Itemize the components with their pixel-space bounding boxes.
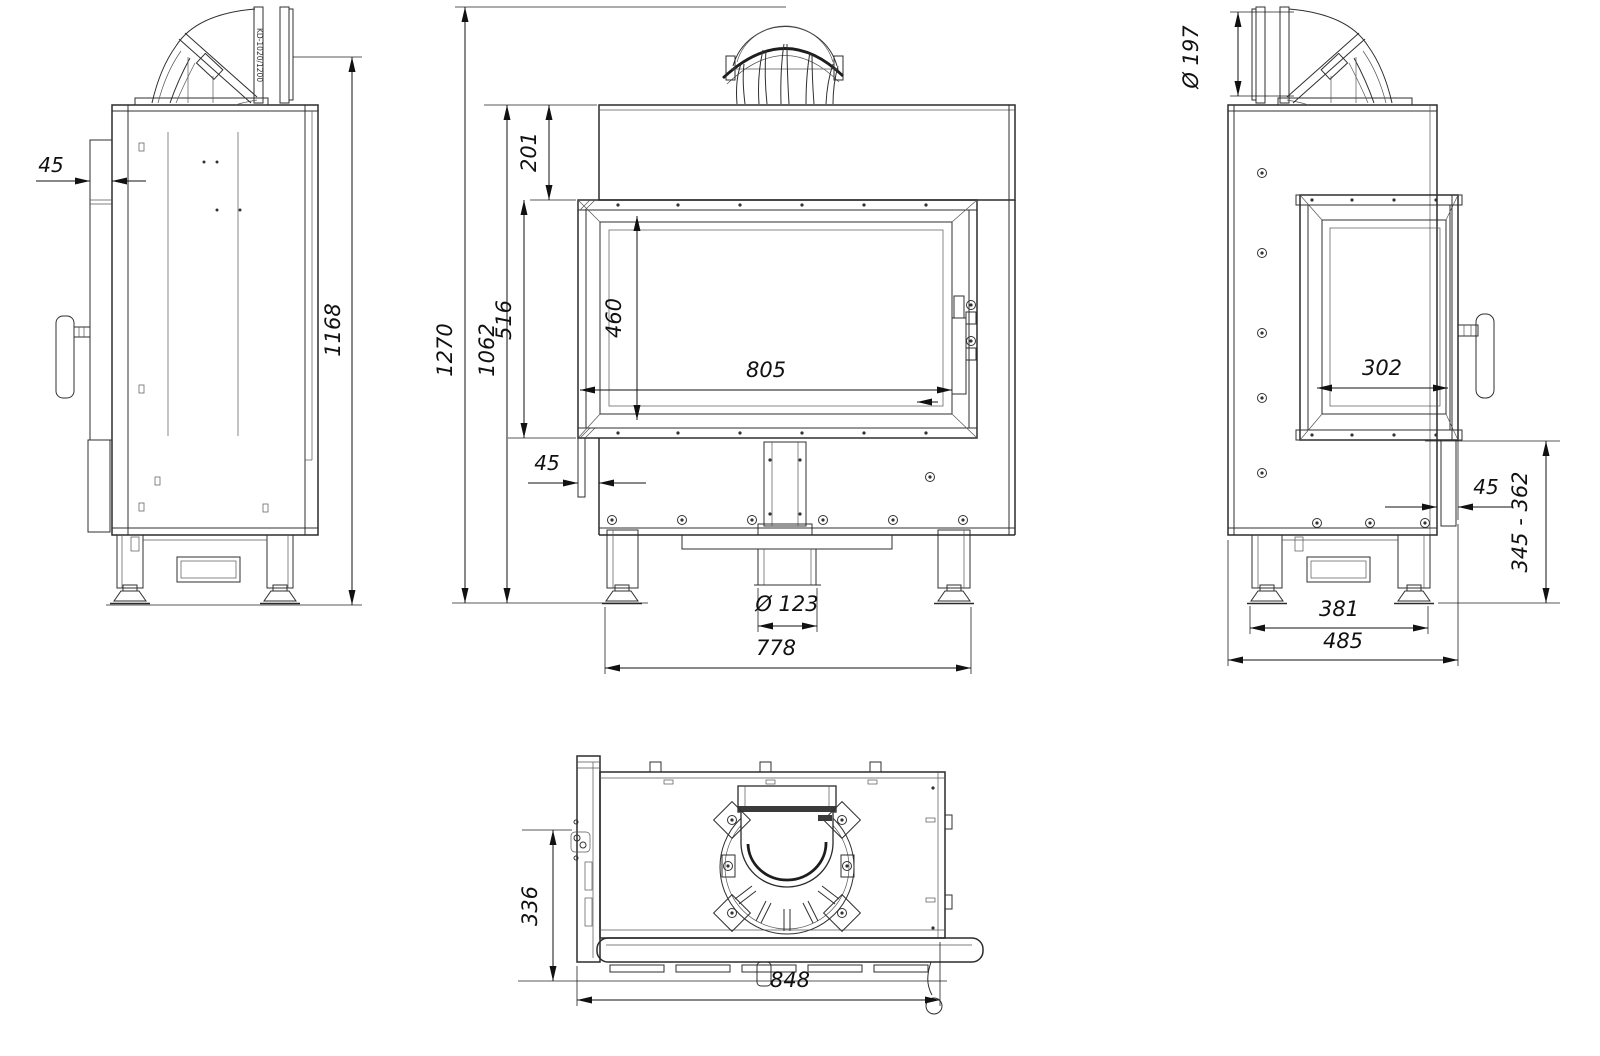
left-view-base <box>110 535 300 604</box>
dim-front-air-inlet: Ø 123 <box>754 588 818 632</box>
dim-front-glass-width: 805 <box>580 358 952 390</box>
dim-right-glass-width-label: 302 <box>1362 356 1402 380</box>
dim-front-top-offset-label: 201 <box>517 132 541 172</box>
dim-front-side-offset-label: 45 <box>534 451 559 475</box>
dim-front-total-height-label: 1270 <box>433 323 457 376</box>
right-view-base <box>1247 535 1434 604</box>
dim-top-width: 848 <box>577 942 940 1006</box>
fireplace-drawing: KD-1020/1200 45 1168 <box>0 0 1600 1056</box>
top-view: 336 848 <box>518 756 983 1014</box>
dim-front-glass-height: 460 <box>602 216 637 420</box>
top-view-left-wall <box>571 756 600 962</box>
front-view-door <box>578 200 977 438</box>
dim-right-front-offset: 45 <box>1385 440 1512 520</box>
right-view-flue-elbow <box>1252 7 1412 105</box>
dim-front-door-height-label: 516 <box>492 300 516 340</box>
front-view-lower-body <box>578 200 1015 604</box>
dim-front-glass-width-label: 805 <box>746 358 786 382</box>
door-latch <box>952 296 976 394</box>
top-view-flue-adapter <box>714 786 861 934</box>
left-view-front-frame-edge <box>88 140 112 532</box>
dim-right-front-offset-label: 45 <box>1473 475 1498 499</box>
dim-top-depth-label: 336 <box>518 886 542 926</box>
left-side-view: KD-1020/1200 45 1168 <box>36 7 362 605</box>
dim-right-depth: 485 <box>1228 524 1458 666</box>
dim-right-feet-span-label: 381 <box>1319 597 1359 621</box>
dim-left-height-label: 1168 <box>321 303 345 356</box>
front-view: 1270 1062 201 516 460 805 45 Ø 123 778 <box>433 7 1015 674</box>
right-view-door-handle <box>1458 314 1494 398</box>
dim-right-glass-width: 302 <box>1317 356 1448 388</box>
right-side-view: Ø 197 302 45 345 - 362 381 485 <box>1179 7 1560 666</box>
dim-right-plinth-height-label: 345 - 362 <box>1508 471 1532 572</box>
dim-front-door-height: 516 <box>492 200 576 438</box>
technical-drawing-canvas: KD-1020/1200 45 1168 <box>0 0 1600 1056</box>
dim-front-feet-span: 778 <box>605 607 971 674</box>
dim-left-front-offset-label: 45 <box>38 153 63 177</box>
dim-left-height: 1168 <box>106 57 362 605</box>
left-view-flue-elbow: KD-1020/1200 <box>135 7 293 105</box>
dim-front-feet-span-label: 778 <box>756 636 796 660</box>
flue-pipe-label: KD-1020/1200 <box>255 28 264 82</box>
right-view-body <box>1228 105 1437 535</box>
dim-front-side-offset: 45 <box>528 451 646 483</box>
dim-right-flue-diameter-label: Ø 197 <box>1179 25 1203 90</box>
dim-front-glass-height-label: 460 <box>602 298 626 338</box>
dim-front-air-inlet-label: Ø 123 <box>754 592 818 616</box>
dim-right-flue-diameter: Ø 197 <box>1179 12 1294 96</box>
dim-top-width-label: 848 <box>770 968 810 992</box>
left-view-door-handle <box>56 316 90 398</box>
front-view-flue-cowl <box>723 26 843 104</box>
dim-front-top-offset: 201 <box>517 105 576 200</box>
dim-right-plinth-height: 345 - 362 <box>1425 441 1560 603</box>
dim-left-front-offset: 45 <box>36 153 146 181</box>
min-mark <box>818 815 832 821</box>
dim-right-depth-label: 485 <box>1323 629 1363 653</box>
latch-tongue <box>757 962 771 986</box>
front-view-hood <box>599 105 1015 535</box>
left-view-body <box>112 105 318 535</box>
